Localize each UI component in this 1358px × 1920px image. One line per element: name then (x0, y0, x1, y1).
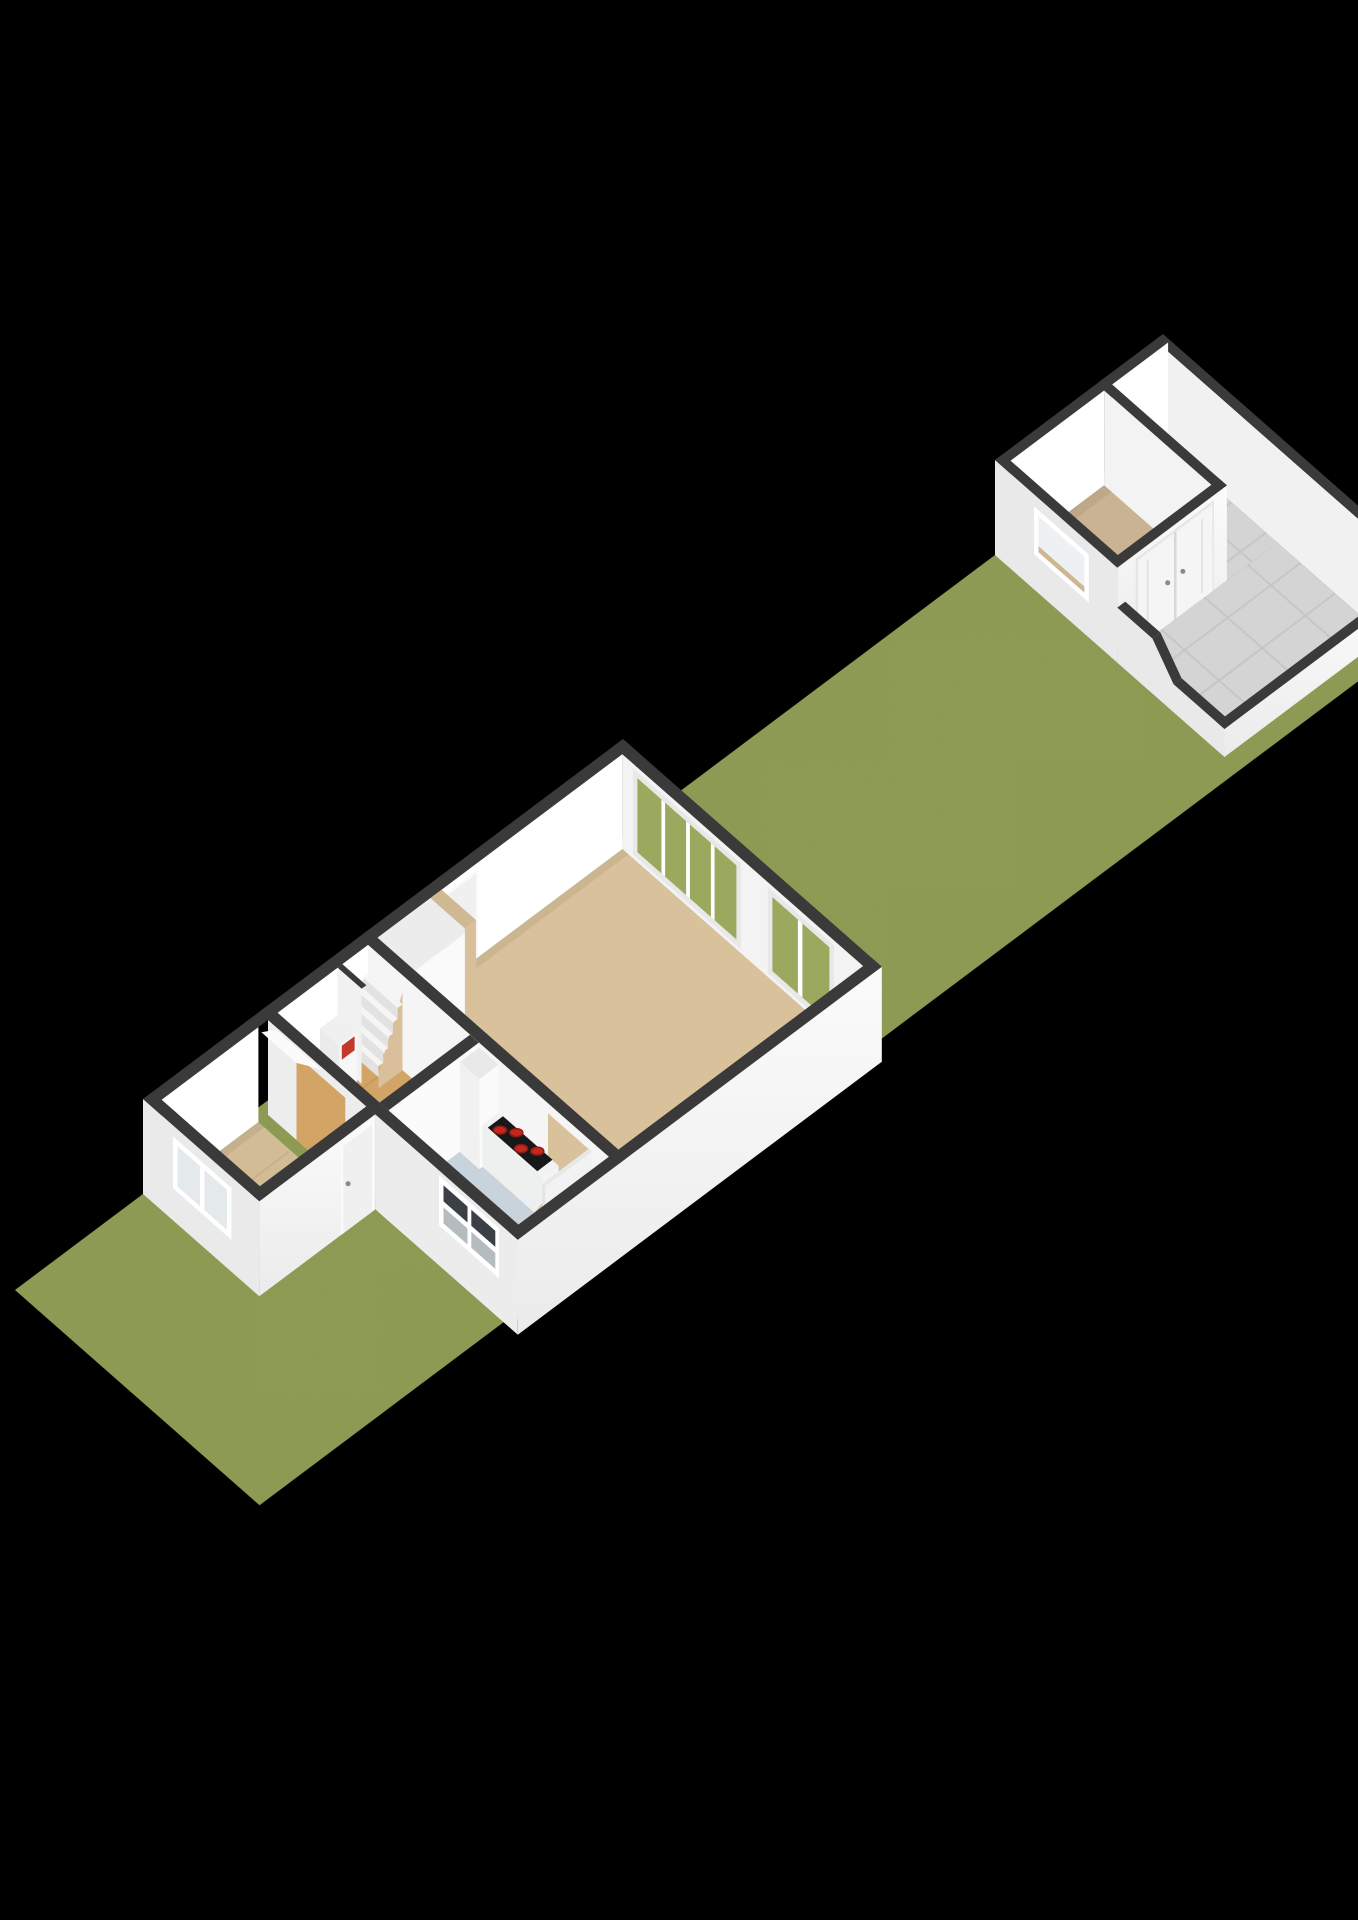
burner (510, 1129, 523, 1137)
burner (531, 1147, 544, 1155)
floorplan-viewer (0, 0, 1358, 1920)
burner (515, 1145, 528, 1153)
shed-door-handle-right (1180, 569, 1185, 574)
kitchen-tall-cabinet (460, 1062, 480, 1169)
floorplan-3d-canvas[interactable] (0, 0, 1358, 1920)
shed-door-seam (1174, 531, 1177, 620)
shed-door-handle-left (1165, 580, 1170, 585)
stair-rail (465, 920, 476, 1023)
burner (494, 1126, 507, 1134)
front-door-handle (346, 1181, 351, 1186)
